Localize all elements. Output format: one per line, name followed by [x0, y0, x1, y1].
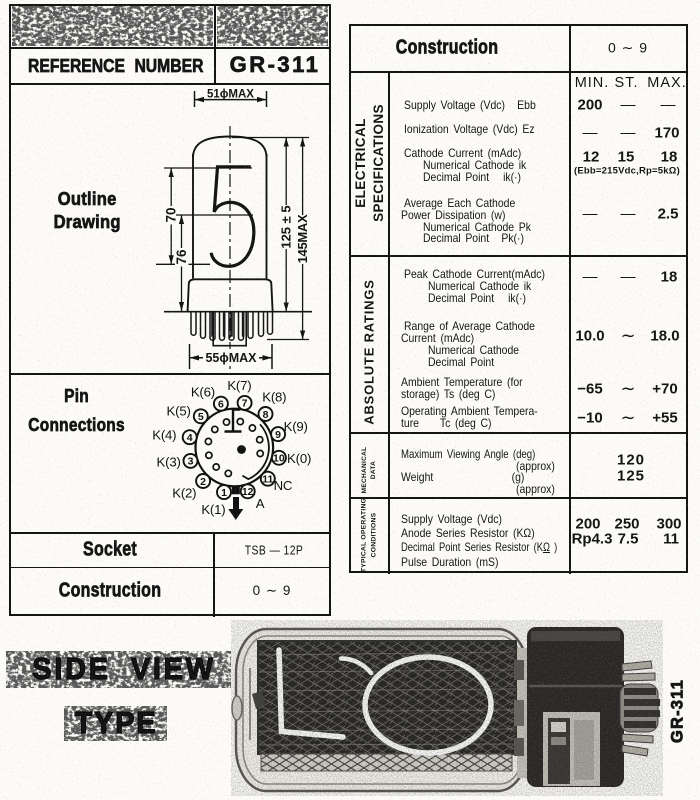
svg-text:K(9): K(9): [284, 419, 308, 434]
svg-text:5: 5: [198, 411, 204, 423]
svg-text:11: 11: [262, 474, 273, 486]
svg-text:2: 2: [200, 476, 206, 488]
svg-text:1: 1: [221, 487, 227, 499]
svg-text:K(5): K(5): [167, 403, 191, 418]
svg-text:K(2): K(2): [172, 485, 196, 500]
svg-text:55ɸMAX: 55ɸMAX: [205, 351, 257, 365]
svg-text:125 ± 5: 125 ± 5: [279, 205, 294, 248]
svg-text:K(4): K(4): [152, 427, 176, 442]
svg-text:K(0): K(0): [287, 451, 311, 466]
svg-text:51ɸMAX: 51ɸMAX: [207, 89, 254, 101]
svg-text:NC: NC: [274, 478, 293, 493]
svg-text:A: A: [256, 496, 265, 511]
svg-text:3: 3: [188, 456, 194, 468]
svg-text:8: 8: [263, 409, 269, 421]
svg-text:10: 10: [273, 453, 285, 465]
svg-text:6: 6: [218, 399, 224, 411]
svg-text:K(1): K(1): [201, 502, 225, 517]
svg-text:K(6): K(6): [191, 385, 215, 400]
svg-text:12: 12: [242, 486, 254, 498]
svg-text:7: 7: [242, 398, 248, 410]
svg-text:145MAX: 145MAX: [295, 214, 310, 263]
svg-text:K(7): K(7): [227, 378, 251, 393]
svg-text:K(8): K(8): [262, 390, 286, 405]
svg-text:9: 9: [275, 429, 281, 441]
svg-text:K(3): K(3): [157, 455, 181, 470]
svg-text:4: 4: [187, 432, 193, 444]
svg-text:76: 76: [174, 249, 189, 265]
